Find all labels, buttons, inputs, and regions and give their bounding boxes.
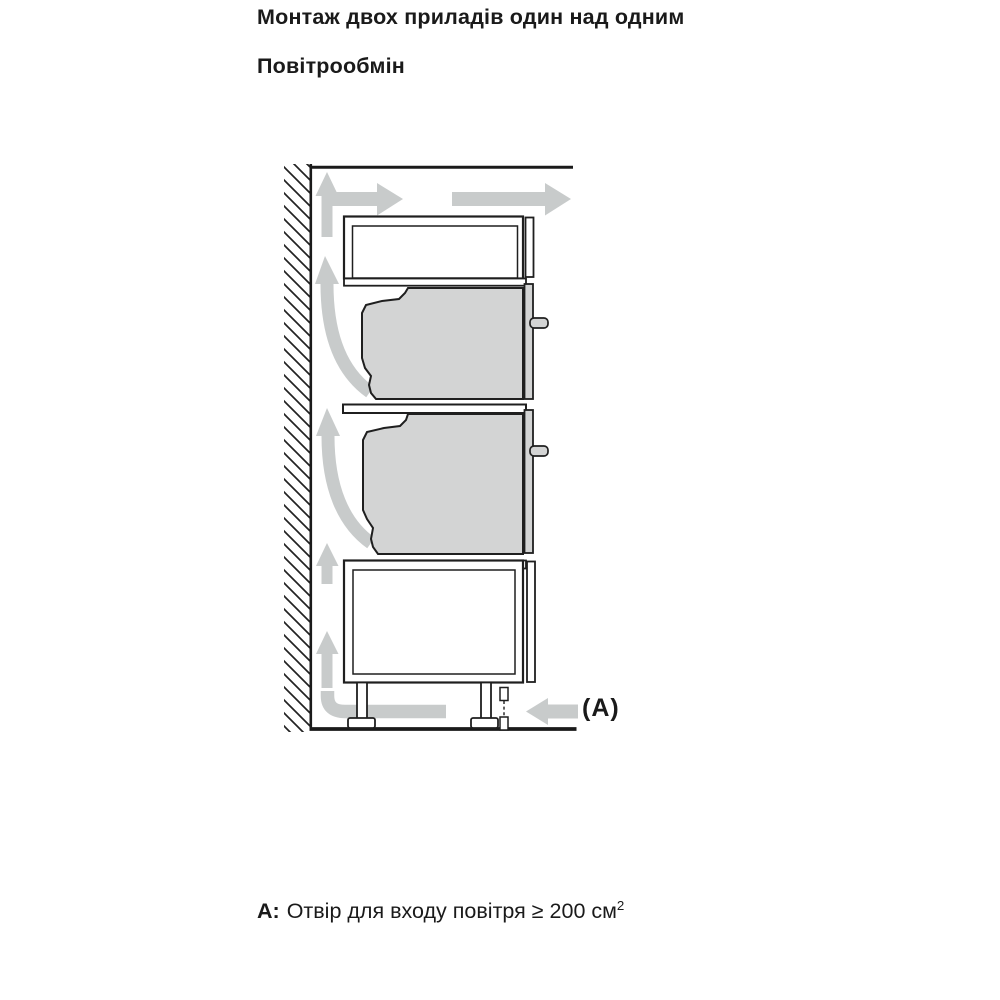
cabinet-leg-left bbox=[357, 683, 367, 719]
cabinet-leg-right bbox=[481, 683, 491, 719]
lower-oven-body bbox=[363, 414, 523, 554]
airflow-up-arrow-mid bbox=[316, 543, 339, 566]
footnote: A:Отвір для входу повітря ≥ 200 см2 bbox=[257, 898, 624, 924]
foot-adjuster-top bbox=[500, 688, 508, 701]
foot-adjuster-bottom bbox=[500, 717, 508, 730]
base-cabinet-front-panel bbox=[527, 562, 535, 683]
footnote-label: A: bbox=[257, 899, 280, 923]
lower-oven-handle bbox=[530, 446, 548, 456]
cabinet-foot-right bbox=[471, 718, 498, 728]
airflow-diagram bbox=[0, 0, 1000, 1000]
upper-oven-handle bbox=[530, 318, 548, 328]
upper-oven bbox=[362, 284, 548, 399]
shelf-between-ovens bbox=[343, 405, 526, 414]
airflow-right-arrow-long bbox=[452, 192, 545, 206]
airflow-up-arrow-low bbox=[316, 631, 339, 654]
top-vent-cabinet bbox=[344, 217, 534, 286]
lower-oven bbox=[363, 410, 548, 554]
footnote-superscript: 2 bbox=[617, 898, 624, 913]
top-cabinet-front-panel bbox=[526, 218, 534, 278]
upper-oven-body bbox=[362, 288, 523, 399]
airflow-elbow-arrow bbox=[328, 691, 447, 712]
airflow-right-arrow-short bbox=[377, 183, 403, 216]
upper-oven-door-panel bbox=[525, 284, 534, 399]
base-cabinet bbox=[344, 561, 535, 731]
cabinet-foot-left bbox=[348, 718, 375, 728]
lower-oven-door-panel bbox=[525, 410, 534, 553]
footnote-text: Отвір для входу повітря ≥ 200 см bbox=[287, 899, 617, 923]
wall-hatching bbox=[284, 164, 311, 732]
diagram-label-a: (A) bbox=[582, 694, 620, 723]
air-intake-arrow bbox=[526, 698, 548, 725]
